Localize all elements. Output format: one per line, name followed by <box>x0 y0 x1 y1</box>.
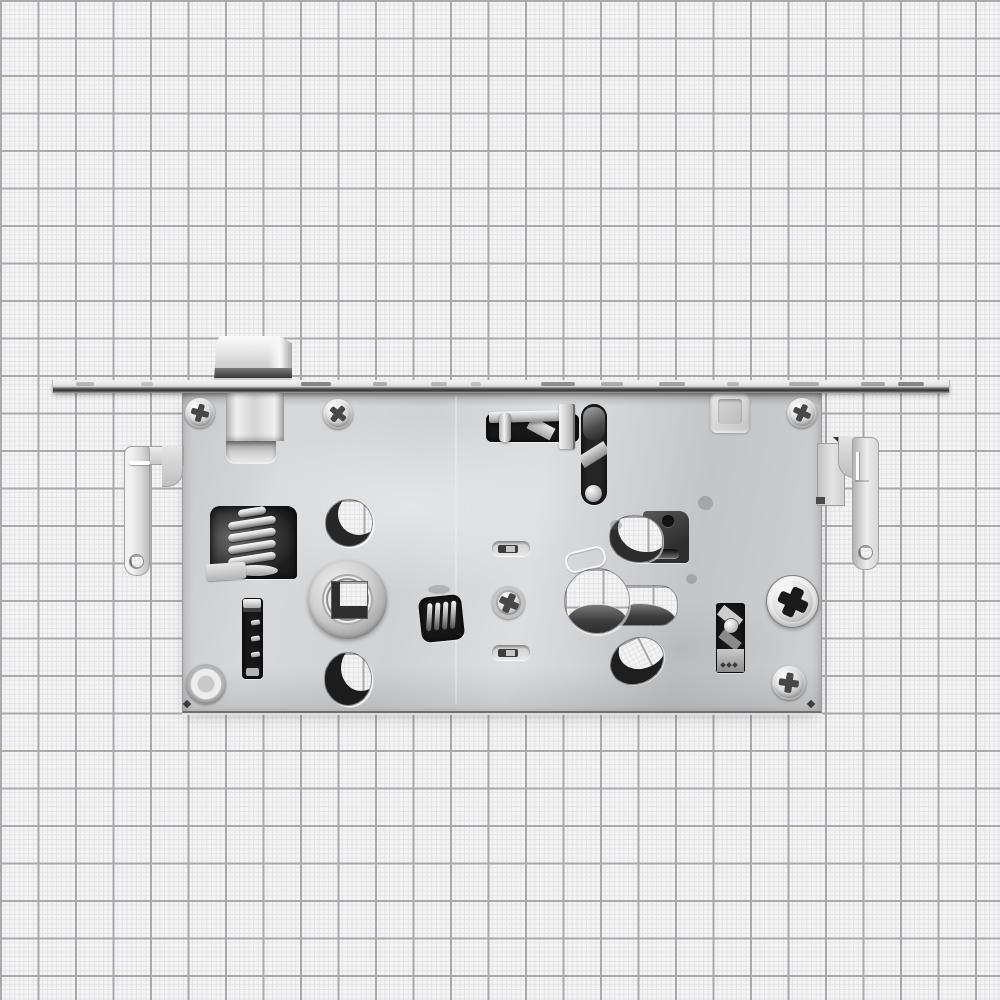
faceplate-mark <box>431 382 447 386</box>
right-bracket-groove <box>856 452 859 480</box>
cam-disc <box>766 575 819 628</box>
right-bracket-hole <box>858 545 873 560</box>
left-bracket-curve <box>162 446 183 487</box>
embossed-square-inner <box>718 399 742 424</box>
faceplate-mark <box>76 382 94 386</box>
slider-rack <box>242 598 263 679</box>
latch-guide-notch <box>226 441 276 462</box>
embossed-slot-pin <box>506 546 515 552</box>
spindle-square-hole <box>331 581 368 619</box>
rack-tooth <box>251 635 261 641</box>
faceplate-mark <box>541 382 575 386</box>
embossed-slot-upper <box>492 541 530 556</box>
faceplate-mark <box>861 382 885 386</box>
rack-tooth <box>251 619 261 625</box>
rack-tooth <box>251 651 261 657</box>
stop-plate-hole <box>662 515 674 527</box>
embossed-slot-pin <box>506 650 515 656</box>
faceplate-mark <box>659 382 685 386</box>
lever-pin <box>499 413 511 442</box>
torsion-coil <box>434 602 440 630</box>
faceplate-mark <box>601 382 623 386</box>
faceplate-mark <box>141 382 153 386</box>
screw-top-right <box>787 398 817 428</box>
torsion-coil <box>442 601 448 629</box>
torsion-coil <box>426 603 432 631</box>
left-bracket-groove <box>129 461 150 465</box>
spring-window-ledge <box>205 562 246 582</box>
faceplate <box>52 380 950 393</box>
left-bracket-hole <box>129 554 144 569</box>
deadbolt-guide-slot <box>716 603 745 673</box>
faceplate-mark <box>898 382 924 386</box>
latch-bolt <box>214 336 292 382</box>
phillips-cross-icon <box>784 672 794 693</box>
embossed-square <box>710 392 750 433</box>
faceplate-mark <box>301 382 331 386</box>
capsule-band <box>581 441 607 468</box>
latch-shadow-band <box>214 368 292 378</box>
rack-foot <box>246 668 259 676</box>
case-reflection-line <box>455 396 457 704</box>
scratch-mark <box>686 574 697 584</box>
upper-round-hole <box>325 499 373 547</box>
faceplate-mark <box>727 382 739 386</box>
rivet-bottom-left <box>186 664 226 704</box>
screw-bottom-right <box>772 666 806 700</box>
lower-round-hole <box>324 652 372 706</box>
rack-cap <box>243 599 261 612</box>
capsule-pin <box>585 485 602 502</box>
lever-end-bracket <box>559 404 575 449</box>
screw-top-left <box>185 398 215 428</box>
torsion-spring-window <box>418 594 465 643</box>
handle-follower-hub <box>308 560 387 639</box>
euro-cylinder-circle <box>564 568 630 634</box>
capsule-top-shade <box>583 407 605 440</box>
right-bracket-crease <box>855 480 869 482</box>
screw-top-mid <box>323 399 353 429</box>
lever-slot-vertical <box>581 404 607 505</box>
embossed-slot-lower <box>492 645 530 660</box>
scratch-mark <box>610 520 622 530</box>
right-bracket-slot <box>816 497 825 504</box>
faceplate-mark <box>471 382 481 386</box>
deadbolt-tail-base <box>717 649 744 672</box>
bolt-tail-band <box>565 604 629 634</box>
scratch-mark <box>428 585 450 594</box>
faceplate-mark <box>789 382 819 386</box>
faceplate-mark <box>373 382 387 386</box>
center-screw <box>492 586 525 619</box>
product-photo <box>0 0 1000 1000</box>
latch-guide-channel <box>226 393 284 441</box>
torsion-coil <box>450 601 456 629</box>
